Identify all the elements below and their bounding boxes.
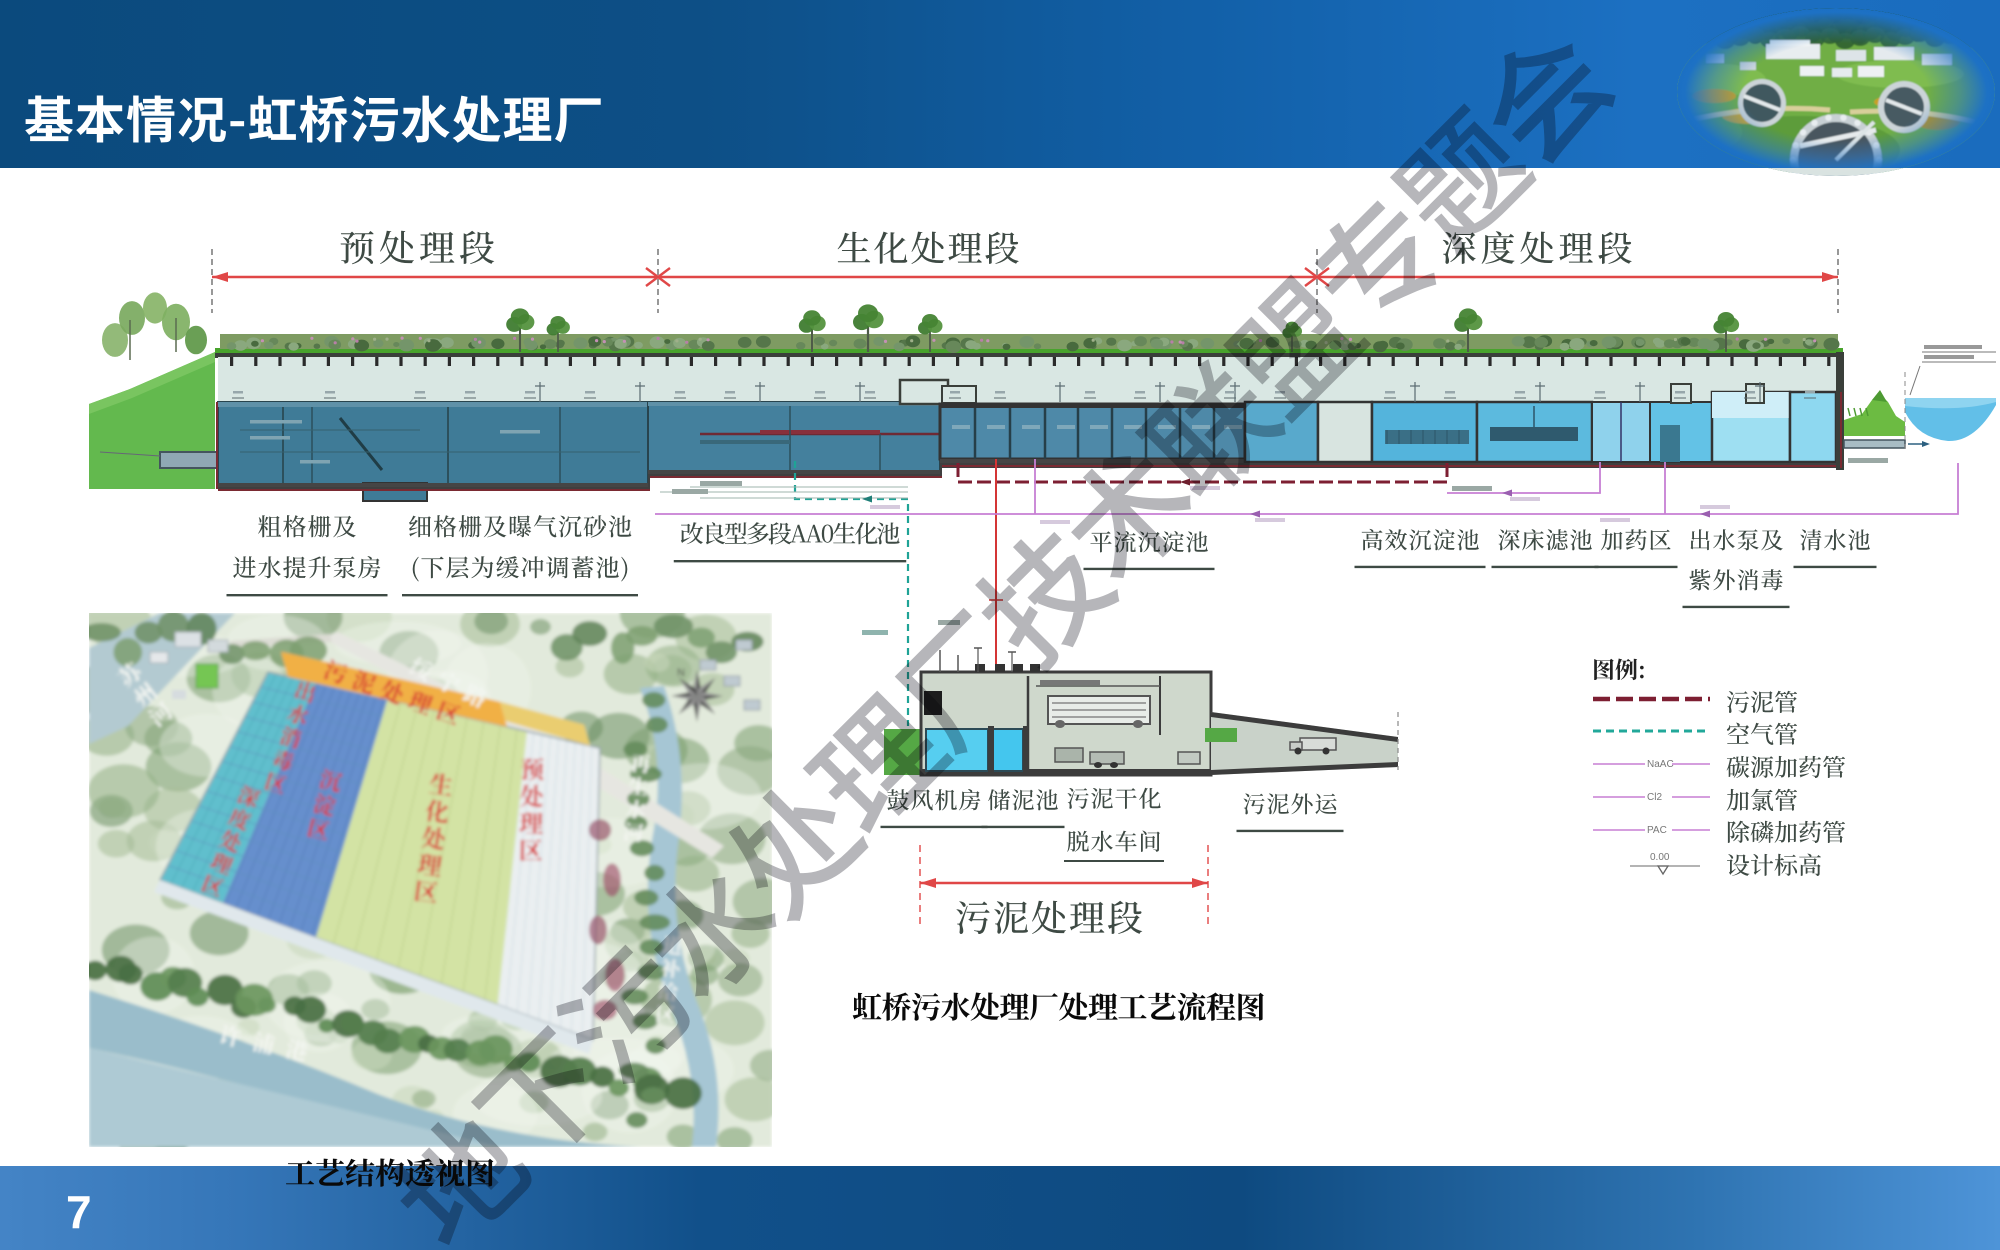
svg-text:PAC: PAC [1647, 825, 1667, 836]
svg-text:NaAC: NaAC [1647, 759, 1674, 770]
svg-text:0.00: 0.00 [1650, 852, 1670, 863]
svg-text:Cl2: Cl2 [1647, 792, 1662, 803]
svg-text:7: 7 [66, 1186, 92, 1238]
